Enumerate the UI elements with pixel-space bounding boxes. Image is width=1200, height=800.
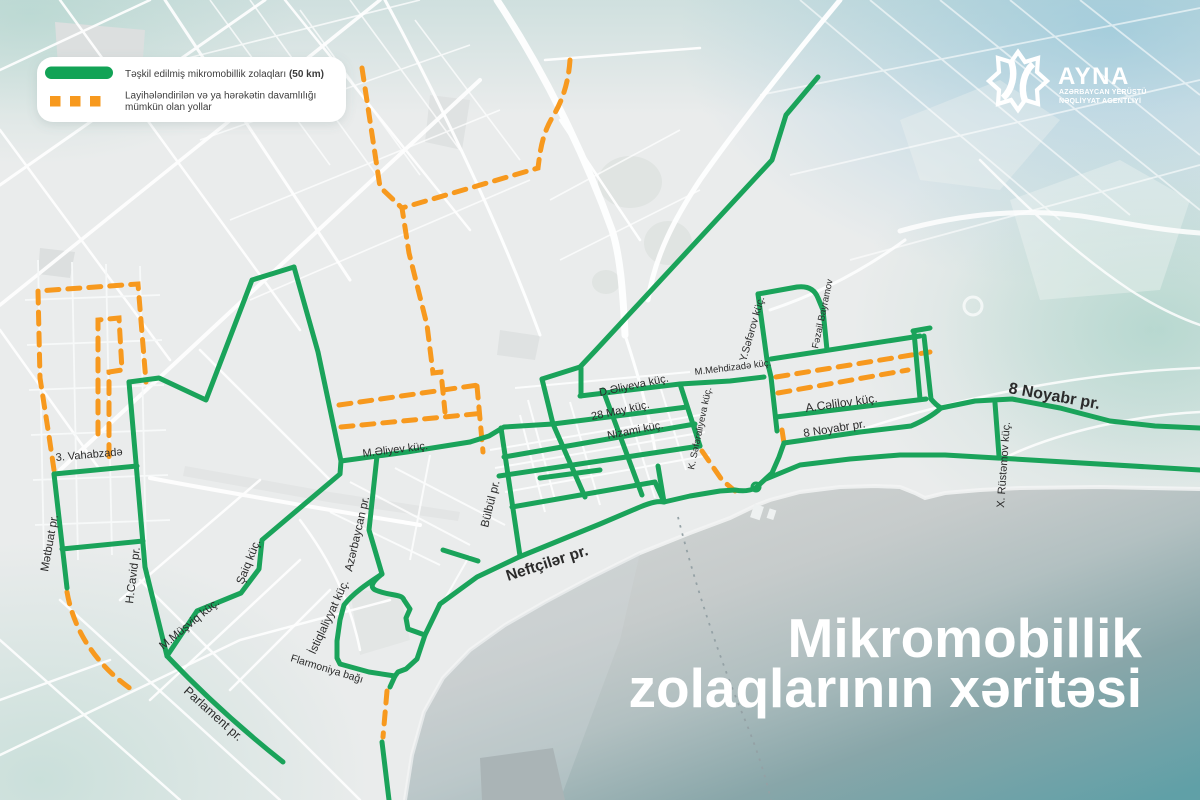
svg-text:AZƏRBAYCAN YERÜSTÜ: AZƏRBAYCAN YERÜSTÜ xyxy=(1059,87,1147,96)
svg-text:Layihələndirilən və ya hərəkət: Layihələndirilən və ya hərəkətin davamlı… xyxy=(125,91,316,102)
svg-text:NƏQLİYYAT AGENTLİYİ: NƏQLİYYAT AGENTLİYİ xyxy=(1059,97,1141,105)
svg-text:Təşkil edilmiş mikromobillik z: Təşkil edilmiş mikromobillik zolaqları (… xyxy=(125,69,324,80)
svg-text:AYNA: AYNA xyxy=(1058,63,1130,90)
svg-text:mümkün olan yollar: mümkün olan yollar xyxy=(125,102,212,113)
svg-text:zolaqlarının xəritəsi: zolaqlarının xəritəsi xyxy=(628,657,1142,719)
